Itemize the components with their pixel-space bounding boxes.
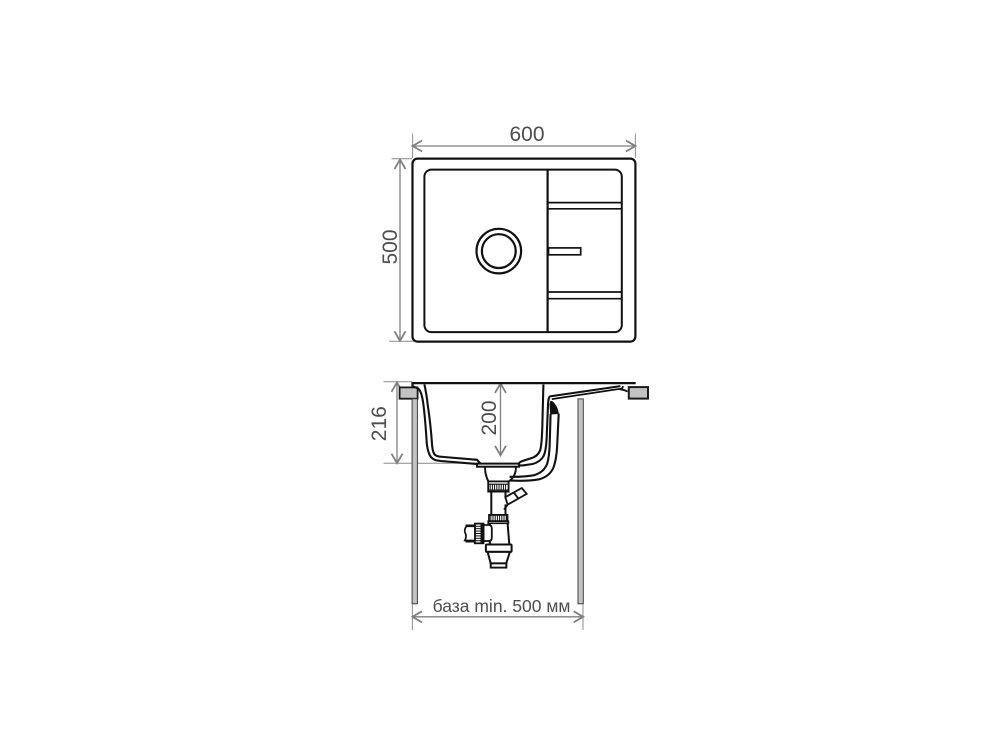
svg-text:216: 216 xyxy=(368,406,391,441)
svg-text:200: 200 xyxy=(478,400,501,435)
svg-text:600: 600 xyxy=(509,123,544,146)
svg-text:500: 500 xyxy=(379,229,402,264)
svg-text:база min. 500 мм: база min. 500 мм xyxy=(433,596,571,616)
